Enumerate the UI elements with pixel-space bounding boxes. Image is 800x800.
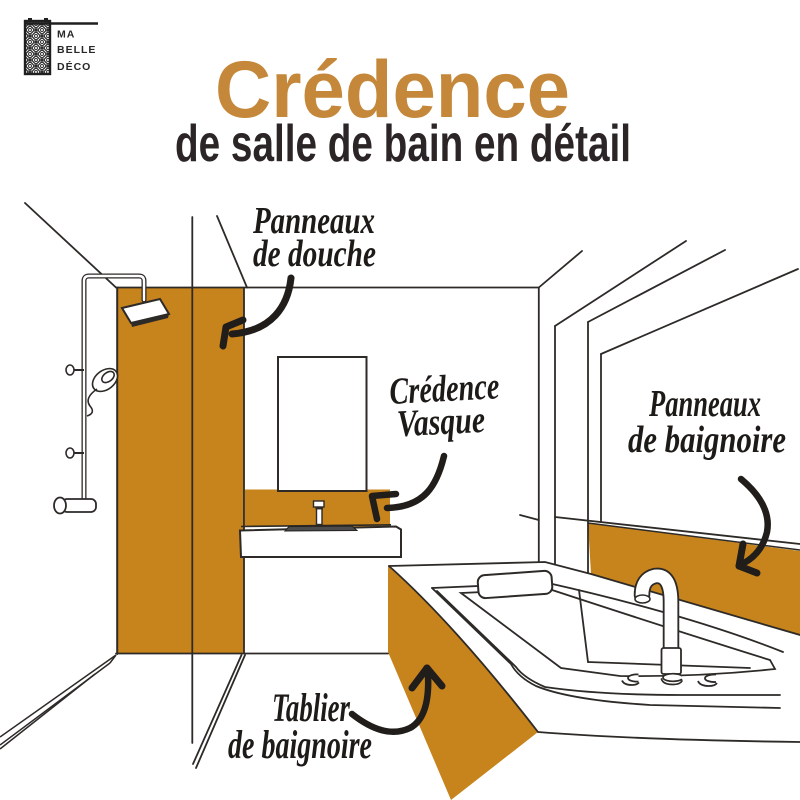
svg-text:de baignoire: de baignoire <box>228 722 372 767</box>
svg-text:MA: MA <box>57 29 75 41</box>
svg-text:de salle de bain en détail: de salle de bain en détail <box>175 115 631 173</box>
svg-text:de douche: de douche <box>253 233 376 275</box>
svg-text:BELLE: BELLE <box>57 44 96 56</box>
svg-text:Vasque: Vasque <box>396 399 486 446</box>
svg-text:de baignoire: de baignoire <box>628 419 786 461</box>
svg-text:DÉCO: DÉCO <box>57 60 91 73</box>
